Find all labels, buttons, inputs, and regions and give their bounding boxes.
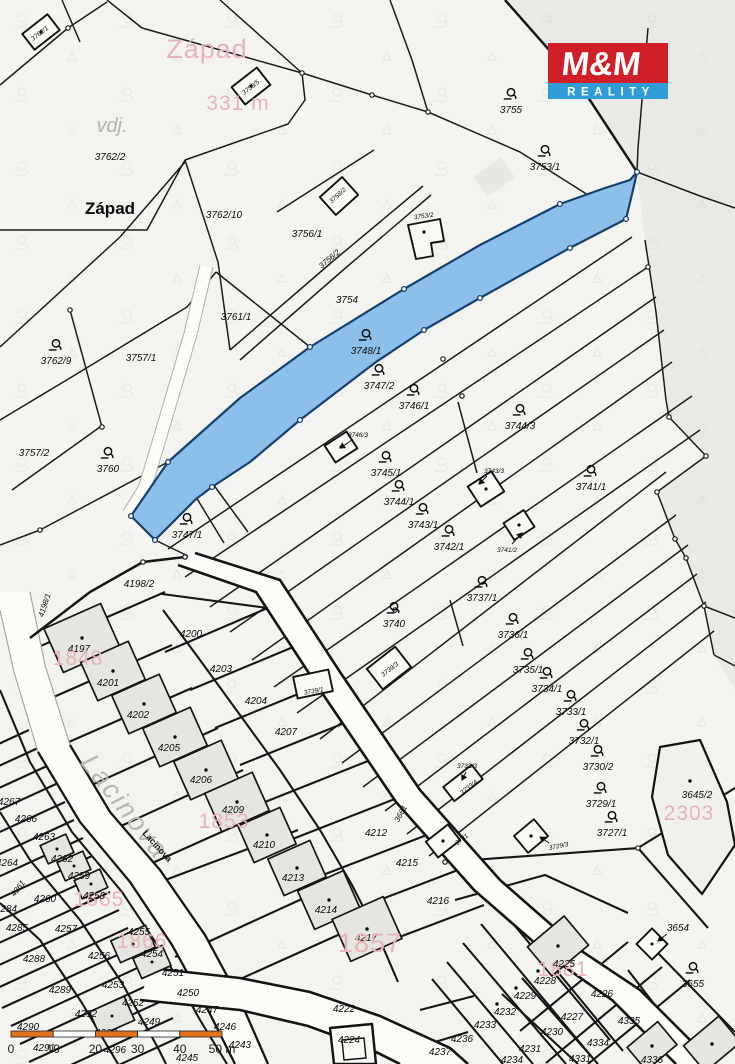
map-label: 4284 bbox=[0, 904, 18, 915]
mm-reality-logo: M&M REALITY bbox=[548, 43, 668, 99]
map-label: 4267 bbox=[0, 797, 21, 808]
scale-bar-segment bbox=[180, 1031, 222, 1037]
map-label: 4227 bbox=[561, 1012, 584, 1023]
map-label: 4232 bbox=[494, 1007, 517, 1018]
map-label: 4252 bbox=[122, 998, 145, 1009]
map-label: 4225 bbox=[553, 959, 576, 970]
map-label: 4255 bbox=[128, 927, 151, 938]
map-label: 4222 bbox=[333, 1004, 356, 1015]
map-label: 3654 bbox=[667, 923, 690, 934]
map-label: 3747/1 bbox=[172, 530, 203, 541]
map-label: 4247 bbox=[196, 1005, 219, 1016]
map-label: 4203 bbox=[210, 664, 233, 675]
map-label: 4292 bbox=[75, 1009, 98, 1020]
map-label: 3735/1 bbox=[513, 665, 544, 676]
logo-bottom-text: REALITY bbox=[567, 87, 655, 99]
map-label: 3762/10 bbox=[206, 210, 243, 221]
scale-bar-label: 20 bbox=[89, 1042, 103, 1056]
map-label: 1857 bbox=[338, 928, 402, 958]
map-label: 3746/3 bbox=[348, 432, 368, 439]
map-label: 3756/1 bbox=[292, 229, 323, 240]
map-label: 3727/1 bbox=[597, 828, 628, 839]
map-label: 3740 bbox=[383, 619, 406, 630]
map-label: 4256 bbox=[88, 951, 111, 962]
map-label: 4260 bbox=[34, 894, 57, 905]
map-label: 4204 bbox=[245, 696, 268, 707]
map-label: 3733/3 bbox=[457, 763, 477, 770]
map-label: 4253 bbox=[102, 980, 125, 991]
map-label: 4331 bbox=[569, 1054, 591, 1064]
map-label: 4214 bbox=[315, 905, 338, 916]
map-label: 3742/1 bbox=[434, 542, 465, 553]
map-label: 4233 bbox=[474, 1020, 497, 1031]
map-label: 4257 bbox=[55, 924, 78, 935]
logo-top-text: M&M bbox=[560, 46, 643, 83]
map-label: 4202 bbox=[127, 710, 150, 721]
map-label: 4224 bbox=[338, 1035, 361, 1046]
map-label: 4236 bbox=[451, 1034, 474, 1045]
scale-bar-label: 40 bbox=[173, 1042, 187, 1056]
map-label: 4251 bbox=[162, 968, 184, 979]
map-label: 3748/1 bbox=[351, 346, 382, 357]
map-label: 3732/1 bbox=[569, 736, 600, 747]
map-label: 4288 bbox=[23, 954, 46, 965]
map-label: 1853 bbox=[199, 810, 250, 833]
map-label: 3737/1 bbox=[467, 593, 498, 604]
map-label: 3755 bbox=[500, 105, 523, 116]
map-label: 3745/1 bbox=[371, 468, 402, 479]
map-label: 4334 bbox=[587, 1038, 610, 1049]
map-label: 331 m bbox=[206, 92, 269, 115]
map-label: 4263 bbox=[33, 832, 56, 843]
map-label: 4250 bbox=[177, 988, 200, 999]
map-label: 3754 bbox=[336, 295, 359, 306]
map-label: 3736/1 bbox=[498, 630, 529, 641]
scale-bar-label: 30 bbox=[131, 1042, 145, 1056]
map-label: 4230 bbox=[541, 1027, 564, 1038]
map-label: 4289 bbox=[49, 985, 72, 996]
map-label: 3733/1 bbox=[556, 707, 587, 718]
map-label: 3753/1 bbox=[530, 162, 561, 173]
map-label: 4262 bbox=[51, 854, 74, 865]
map-label: 4212 bbox=[365, 828, 388, 839]
map-label: 4210 bbox=[253, 840, 276, 851]
map-label: 4207 bbox=[275, 727, 298, 738]
scale-bar-segment bbox=[53, 1031, 95, 1037]
map-label: 4335 bbox=[618, 1016, 641, 1027]
map-label: 4200 bbox=[180, 629, 203, 640]
map-label: 4231 bbox=[519, 1044, 541, 1055]
map-label: 4259 bbox=[68, 871, 91, 882]
map-label: 3761/1 bbox=[221, 312, 252, 323]
map-label: 4336 bbox=[641, 1055, 664, 1064]
map-label: 3729/1 bbox=[586, 799, 617, 810]
map-label: 2303 bbox=[664, 802, 715, 825]
map-label: 3744/1 bbox=[384, 497, 415, 508]
map-label: Západ bbox=[85, 199, 135, 218]
map-label: 3734/1 bbox=[532, 684, 563, 695]
scale-bar-label: 10 bbox=[47, 1042, 61, 1056]
map-label: 3741/1 bbox=[576, 482, 607, 493]
map-label: 3757/1 bbox=[126, 353, 157, 364]
map-label: 4234 bbox=[501, 1055, 524, 1064]
map-label: 4249 bbox=[138, 1017, 161, 1028]
map-label: 4237 bbox=[429, 1047, 452, 1058]
map-label: 3757/2 bbox=[19, 448, 50, 459]
map-label: 3762/9 bbox=[41, 356, 72, 367]
map-label: 4285 bbox=[6, 923, 29, 934]
map-label: 3747/2 bbox=[364, 381, 395, 392]
map-label: 4216 bbox=[427, 896, 450, 907]
map-label: Západ bbox=[166, 34, 248, 64]
map-label: 3746/1 bbox=[399, 401, 430, 412]
map-label: 3741/2 bbox=[497, 547, 517, 554]
map-label: 4266 bbox=[15, 814, 38, 825]
scale-bar-segment bbox=[95, 1031, 137, 1037]
scale-bar-label: 50 m bbox=[209, 1042, 236, 1056]
cadastral-map: 3762/13753/5Západ331 mvdj.3762/2Západ376… bbox=[0, 0, 735, 1064]
map-label: 4228 bbox=[534, 976, 557, 987]
map-label: 1848 bbox=[53, 647, 104, 670]
map-label: 4258 bbox=[83, 891, 106, 902]
map-label: 4264 bbox=[0, 858, 19, 869]
map-label: 3743/3 bbox=[484, 468, 504, 475]
map-label: 3645/2 bbox=[682, 790, 713, 801]
map-label: vdj. bbox=[96, 115, 127, 137]
map-label: 4213 bbox=[282, 873, 305, 884]
map-label: 3655 bbox=[682, 979, 705, 990]
map-label: 4201 bbox=[97, 678, 119, 689]
map-label: 4229 bbox=[514, 991, 537, 1002]
map-label: 3743/1 bbox=[408, 520, 439, 531]
map-label: 3744/3 bbox=[505, 421, 536, 432]
map-label: 4206 bbox=[190, 775, 213, 786]
scale-bar-segment bbox=[11, 1031, 53, 1037]
map-label: 3762/2 bbox=[95, 152, 126, 163]
scale-bar-label: 0 bbox=[8, 1042, 15, 1056]
map-label: 4254 bbox=[141, 949, 164, 960]
map-label: 3760 bbox=[97, 464, 120, 475]
map-label: 3730/2 bbox=[583, 762, 614, 773]
map-label: 4226 bbox=[591, 989, 614, 1000]
map-label: 4215 bbox=[396, 858, 419, 869]
scale-bar-segment bbox=[138, 1031, 180, 1037]
map-label: 4205 bbox=[158, 743, 181, 754]
map-label: 4198/2 bbox=[124, 579, 155, 590]
map-label: 4296 bbox=[104, 1045, 127, 1056]
